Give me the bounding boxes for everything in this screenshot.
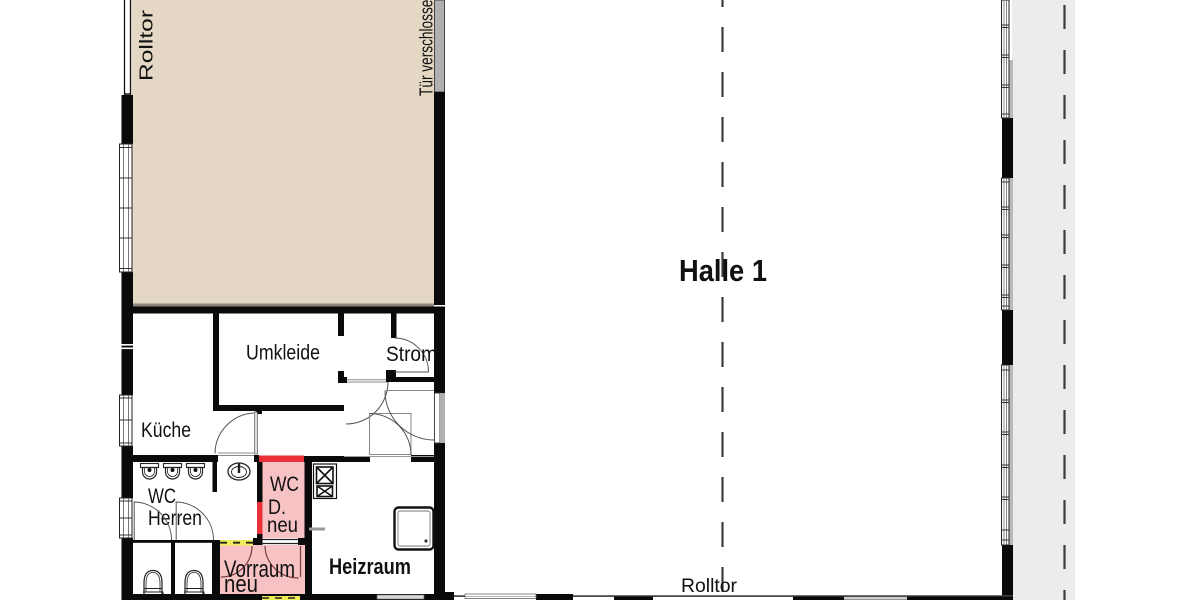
svg-text:Rolltor: Rolltor [137,10,157,81]
svg-text:Rolltor: Rolltor [681,575,737,597]
svg-text:Heizraum: Heizraum [329,554,411,579]
svg-text:Herren: Herren [148,507,202,530]
svg-text:neu: neu [224,571,258,598]
svg-text:Tür verschlossen: Tür verschlossen [417,0,437,96]
svg-text:Umkleide: Umkleide [246,341,320,365]
svg-text:Strom: Strom [386,342,437,366]
svg-text:Halle 1: Halle 1 [679,253,767,288]
svg-text:WC: WC [270,473,299,496]
svg-text:neu: neu [267,514,298,537]
svg-text:WC: WC [148,485,176,508]
svg-text:Küche: Küche [141,419,191,442]
